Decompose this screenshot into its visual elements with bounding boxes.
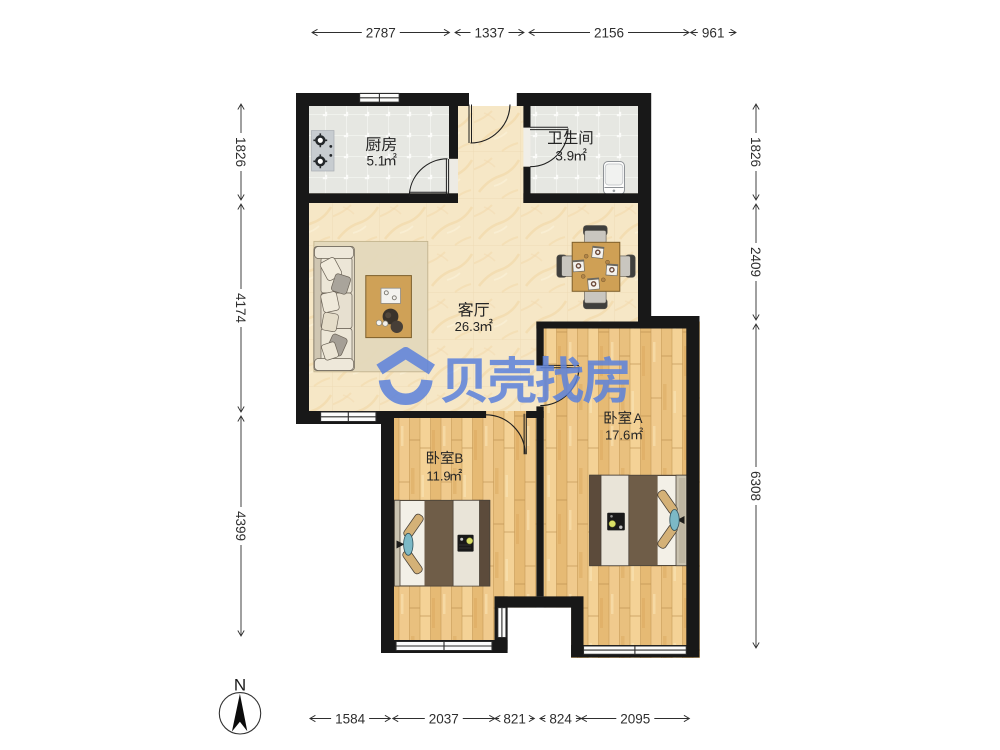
svg-text:1584: 1584: [335, 711, 366, 726]
svg-text:2095: 2095: [620, 711, 650, 726]
svg-text:5.1: 5.1: [367, 153, 386, 168]
svg-text:2409: 2409: [748, 247, 763, 277]
svg-text:2787: 2787: [366, 25, 396, 40]
svg-text:6308: 6308: [748, 471, 763, 501]
svg-text:B: B: [454, 451, 463, 466]
svg-text:3.9: 3.9: [555, 149, 574, 164]
svg-text:2156: 2156: [594, 25, 624, 40]
svg-text:2037: 2037: [429, 711, 459, 726]
svg-text:824: 824: [549, 711, 572, 726]
svg-text:N: N: [234, 676, 246, 695]
svg-text:17.6: 17.6: [605, 427, 630, 442]
svg-text:1826: 1826: [233, 137, 248, 167]
svg-text:821: 821: [503, 711, 526, 726]
svg-text:11.9: 11.9: [426, 469, 450, 484]
svg-text:961: 961: [702, 25, 725, 40]
svg-text:4174: 4174: [233, 293, 248, 324]
svg-text:1826: 1826: [748, 137, 763, 167]
svg-text:4399: 4399: [233, 511, 248, 541]
svg-text:A: A: [634, 411, 643, 426]
svg-text:26.3: 26.3: [455, 319, 480, 334]
svg-text:1337: 1337: [474, 25, 504, 40]
